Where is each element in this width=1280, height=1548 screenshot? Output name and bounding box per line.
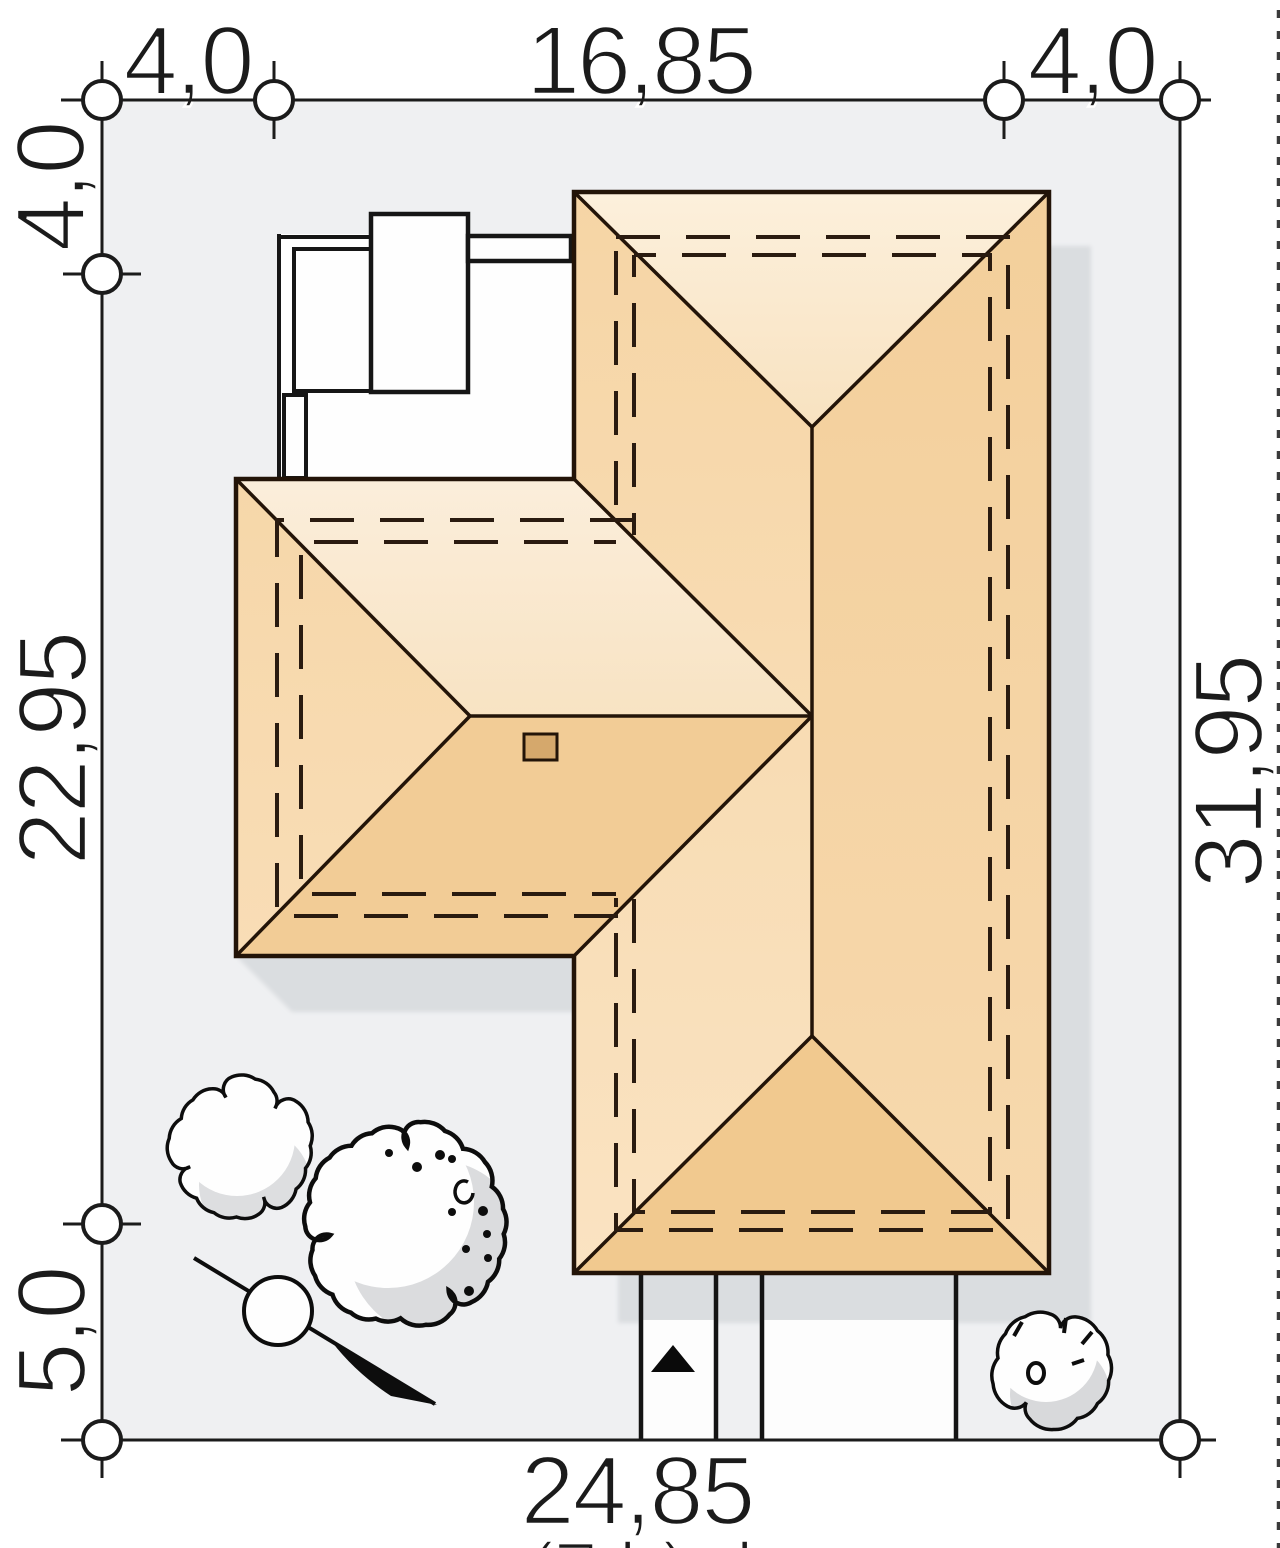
svg-text:5,0: 5,0 [0,1268,106,1397]
svg-text:(7,b) d: (7,b) d [528,1526,753,1548]
svg-text:4,0: 4,0 [0,123,105,252]
svg-text:31,95: 31,95 [1174,656,1280,889]
svg-text:22,95: 22,95 [0,633,107,866]
